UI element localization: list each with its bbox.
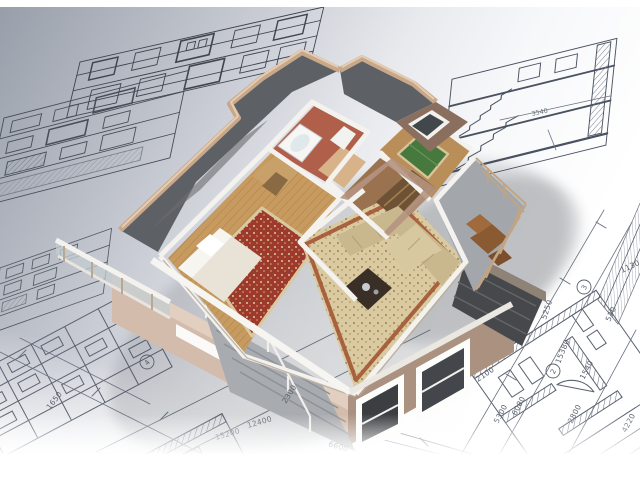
bottom-white-margin — [0, 454, 640, 480]
facade-drawing-lower-left — [0, 228, 112, 333]
dimension-label: 15380 — [554, 338, 572, 365]
blueprint-and-house: 1650 2300 15200 12400 6600 2100 5300 608… — [0, 0, 640, 480]
architectural-render: 1650 2300 15200 12400 6600 2100 5300 608… — [0, 0, 640, 480]
grid-marker-3: 3 — [577, 280, 591, 294]
paper-bottom-fade — [0, 414, 640, 454]
top-white-margin — [0, 0, 640, 7]
svg-text:3: 3 — [580, 284, 589, 292]
grid-marker-2: 2 — [546, 364, 560, 378]
svg-text:2: 2 — [549, 368, 558, 376]
